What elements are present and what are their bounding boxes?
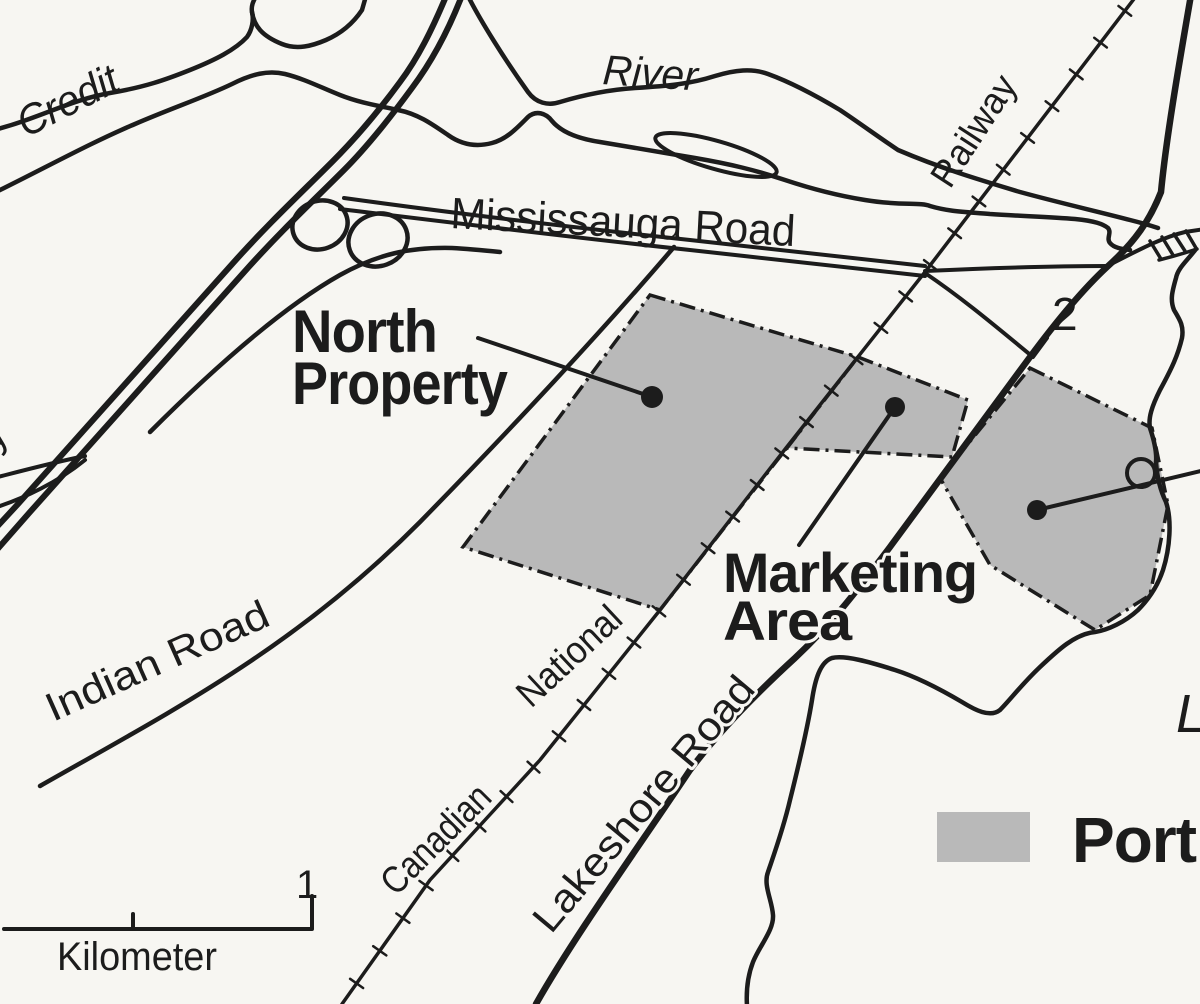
- marketing-area-dot: [885, 397, 905, 417]
- legend-swatch: [937, 812, 1030, 862]
- east-property-dot: [1027, 500, 1047, 520]
- river-north-bank-bend: [252, 0, 366, 47]
- legend: Port: [937, 804, 1197, 876]
- railway-tick: [396, 914, 409, 923]
- interchange-loop-west: [285, 193, 354, 257]
- mississauga-road-east-extension: [925, 266, 1107, 271]
- marketing-area-label-line2: Area: [723, 589, 853, 652]
- scale-bar-line: [4, 896, 312, 929]
- highway-name-partial-label: y: [0, 412, 16, 457]
- legend-label: Port: [1072, 804, 1197, 876]
- railway-label-national: National: [508, 598, 630, 716]
- indian-road-label: Indian Road: [39, 592, 276, 730]
- railway-tick: [350, 979, 363, 988]
- lake-partial-label: L: [1176, 684, 1200, 744]
- scale-bar-unit: Kilometer: [57, 935, 217, 979]
- railway-label-canadian: Canadian: [373, 776, 500, 903]
- north-property-dot: [641, 386, 663, 408]
- river-north-bank-east: [468, 0, 1158, 228]
- scale-bar: 1 Kilometer: [4, 863, 318, 979]
- scale-bar-max: 1: [296, 863, 318, 907]
- lakeshore-road-label: Lakeshore Road: [524, 667, 763, 940]
- highway-2-label: 2: [1052, 288, 1078, 340]
- credit-river-label-river: River: [601, 46, 701, 100]
- credit-river-label-credit: Credit: [9, 54, 129, 146]
- railway-tick: [373, 946, 386, 955]
- minor-road: [925, 273, 1047, 357]
- mississauga-road-label: Mississauga Road: [449, 189, 796, 256]
- scanned-property-map: 1 Kilometer Port Credit River Mississaug…: [0, 0, 1200, 1004]
- north-property-label-line2: Property: [292, 350, 508, 417]
- map-canvas: 1 Kilometer Port Credit River Mississaug…: [0, 0, 1200, 1004]
